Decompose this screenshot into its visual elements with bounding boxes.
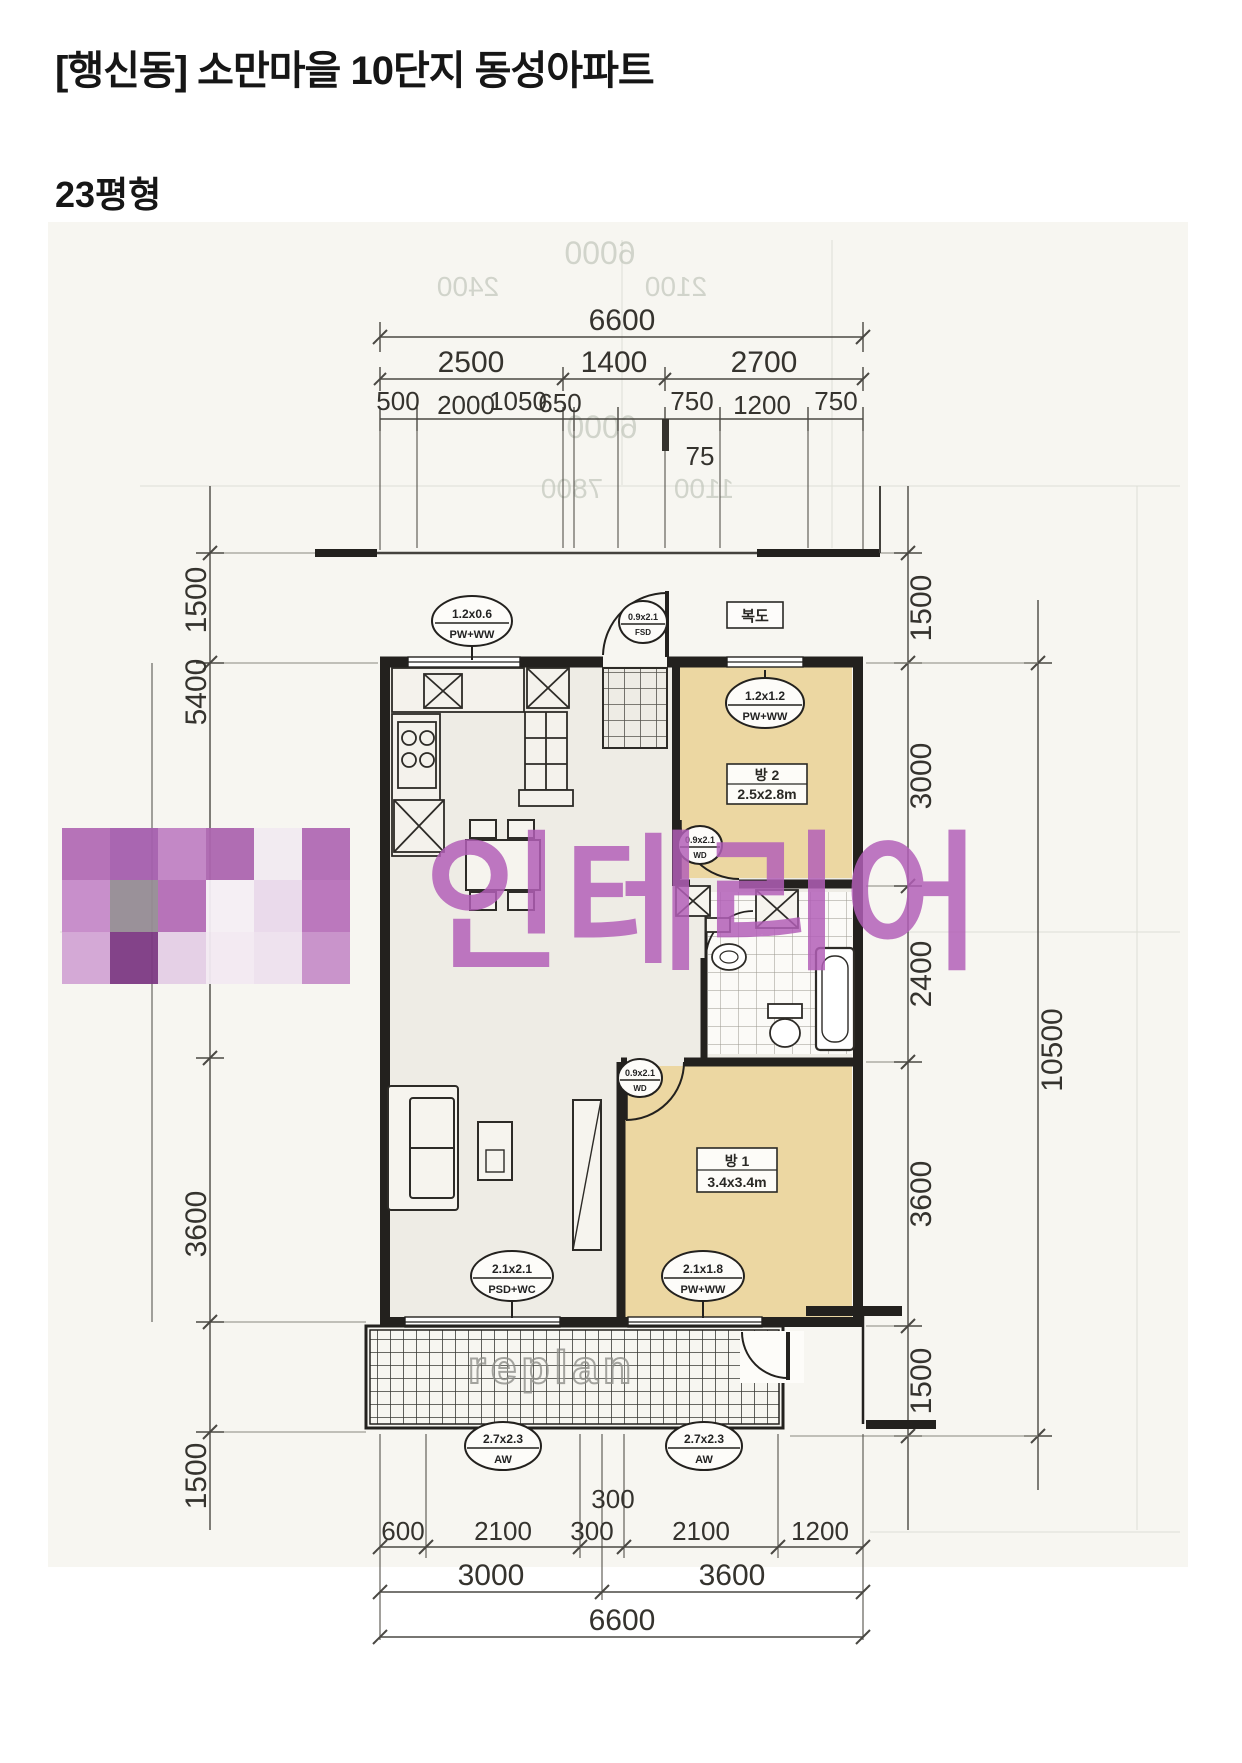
opening-size: 0.9x2.1 [625, 1068, 655, 1078]
dim-top-row3: 650 [538, 388, 581, 418]
mosaic-cell [206, 880, 254, 932]
mosaic-cell [206, 932, 254, 984]
dim-right-total: 10500 [1036, 1008, 1069, 1091]
dim-top-row3: 2000 [437, 390, 495, 420]
mosaic-cell [62, 932, 110, 984]
opening-size: 0.9x2.1 [628, 612, 658, 622]
mosaic-cell [62, 880, 110, 932]
room2-label-box: 방 2 2.5x2.8m [727, 764, 807, 804]
opening-size: 2.7x2.3 [684, 1432, 724, 1446]
dim-top-total: 6600 [589, 304, 656, 337]
opening-type: PW+WW [743, 711, 789, 723]
mosaic-cell [206, 828, 254, 880]
dim-top-row3: 1200 [733, 390, 791, 420]
dim-left: 1500 [180, 1443, 213, 1510]
dim-left: 1500 [180, 567, 213, 634]
mosaic-cell [62, 828, 110, 880]
dimension-chain-left: 1500 5400 3600 1500 [152, 486, 378, 1530]
dim-top-sub: 75 [686, 441, 715, 471]
dim-right: 1500 [905, 575, 938, 642]
dim-top-row3: 500 [376, 386, 419, 416]
room2-name: 방 2 [755, 767, 780, 783]
replan-watermark-text: replan [468, 1340, 636, 1394]
dim-top-row2: 2700 [731, 346, 798, 379]
ghost-label: 2100 [645, 271, 707, 302]
dimension-chain-bottom: 600 2100 300 300 2100 1200 3000 3600 660… [373, 1434, 870, 1644]
tv [486, 1150, 504, 1172]
corridor: 복도 [315, 486, 880, 628]
mosaic-cell [110, 880, 158, 932]
opening-label-balcony-window-left: 2.7x2.3 AW [465, 1422, 541, 1470]
opening-size: 2.7x2.3 [483, 1432, 523, 1446]
toilet-bowl [770, 1019, 800, 1047]
mosaic-cell [158, 932, 206, 984]
dim-right: 1500 [905, 1348, 938, 1415]
mosaic-cell [302, 932, 350, 984]
room1-label-box: 방 1 3.4x3.4m [697, 1148, 777, 1192]
ghost-label: 1100 [674, 473, 734, 504]
opening-label-entry-door: 0.9x2.1 FSD [619, 601, 667, 643]
room1-size: 3.4x3.4m [707, 1174, 766, 1190]
opening-size: 1.2x1.2 [745, 689, 785, 703]
mosaic-cell [254, 932, 302, 984]
opening-size: 2.1x1.8 [683, 1262, 723, 1276]
dim-75-tick [662, 419, 669, 451]
dim-bottom-row1: 2100 [474, 1516, 532, 1546]
room1-name: 방 1 [725, 1153, 750, 1169]
mosaic-cell [158, 880, 206, 932]
mosaic-cell [110, 932, 158, 984]
dim-bottom-row2: 3000 [458, 1559, 525, 1592]
dim-top-row3: 750 [814, 386, 857, 416]
dim-left: 3600 [180, 1191, 213, 1258]
mosaic-watermark [62, 828, 350, 984]
room2-size: 2.5x2.8m [737, 786, 796, 802]
page: [행신동] 소만마을 10단지 동성아파트 23평형 6000 [0, 0, 1242, 1763]
opening-type: AW [494, 1454, 512, 1466]
corridor-label: 복도 [741, 608, 769, 625]
dim-bottom-row1: 600 [381, 1516, 424, 1546]
opening-type: WD [633, 1084, 647, 1093]
mosaic-cell [254, 828, 302, 880]
ghost-label: 7800 [541, 473, 603, 504]
neighbor-wall-stub [866, 1420, 936, 1429]
opening-label-balcony-window-right: 2.7x2.3 AW [666, 1422, 742, 1470]
dim-left: 5400 [180, 659, 213, 726]
ghost-label: 6000 [564, 235, 635, 271]
dim-bottom-row1-upper: 300 [591, 1484, 634, 1514]
opening-type: PSD+WC [488, 1284, 535, 1296]
dim-right: 3600 [905, 1161, 938, 1228]
toilet-tank [768, 1004, 802, 1018]
dim-top-row2: 2500 [438, 346, 505, 379]
mosaic-cell [302, 828, 350, 880]
mosaic-cell [110, 828, 158, 880]
dim-bottom-row2: 3600 [699, 1559, 766, 1592]
dim-top-row3: 750 [670, 386, 713, 416]
dim-bottom-row1: 1200 [791, 1516, 849, 1546]
opening-label-room1-door: 0.9x2.1 WD [618, 1059, 662, 1097]
neighbor-wall-stub [806, 1306, 902, 1316]
dim-bottom-total: 6600 [589, 1604, 656, 1637]
ghost-label: 2400 [437, 271, 499, 302]
opening-label-kitchen-window: 1.2x0.6 PW+WW [432, 596, 512, 660]
mosaic-cell [158, 828, 206, 880]
dim-top-row2: 1400 [581, 346, 648, 379]
dim-bottom-row1: 300 [570, 1516, 613, 1546]
opening-type: PW+WW [681, 1284, 727, 1296]
entry-vestibule-tile [603, 668, 667, 748]
opening-size: 2.1x2.1 [492, 1262, 532, 1276]
opening-type: FSD [635, 628, 651, 637]
dim-right: 3000 [905, 743, 938, 810]
opening-type: PW+WW [450, 629, 496, 641]
opening-type: AW [695, 1454, 713, 1466]
entry-cabinet [519, 790, 573, 806]
interior-watermark-text: 인테리어 [424, 820, 1074, 1000]
opening-size: 1.2x0.6 [452, 607, 492, 621]
dim-bottom-row1: 2100 [672, 1516, 730, 1546]
mosaic-cell [254, 880, 302, 932]
mosaic-cell [302, 880, 350, 932]
